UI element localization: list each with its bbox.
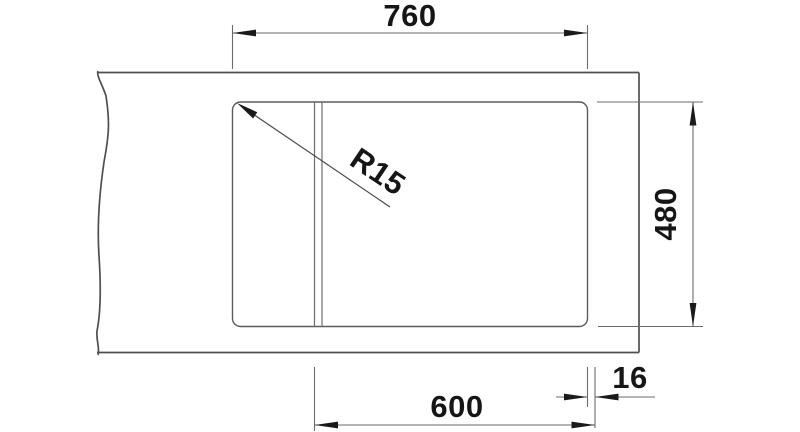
- arrowhead-up-icon: [690, 102, 697, 126]
- dimension-bottom-width: 600: [315, 367, 596, 431]
- arrowhead-right-icon: [564, 30, 588, 37]
- arrowhead-corner-icon: [237, 103, 257, 119]
- drawing-canvas: 760 480 600 16: [0, 0, 800, 432]
- arrowhead-left-icon: [233, 30, 257, 37]
- dimension-bottom-offset: 16: [556, 360, 655, 428]
- worktop-break-line: [97, 71, 109, 355]
- cutout-divider-lines: [315, 102, 323, 327]
- arrowhead-left-icon: [315, 422, 339, 429]
- dimension-top-width: 760: [233, 0, 588, 69]
- dimension-right-depth: 480: [597, 102, 703, 327]
- radius-value: R15: [344, 141, 412, 203]
- arrowhead-right-icon: [572, 422, 596, 429]
- dimension-value-right: 480: [648, 187, 683, 240]
- arrowhead-down-icon: [690, 303, 697, 327]
- dimension-value-top: 760: [383, 0, 436, 33]
- dimension-value-offset: 16: [612, 360, 647, 395]
- dimension-value-bottom: 600: [430, 389, 483, 424]
- radius-callout: R15: [237, 103, 412, 207]
- worktop-outline: [97, 71, 639, 355]
- technical-drawing: 760 480 600 16: [0, 0, 800, 432]
- arrowhead-right-icon: [564, 394, 588, 401]
